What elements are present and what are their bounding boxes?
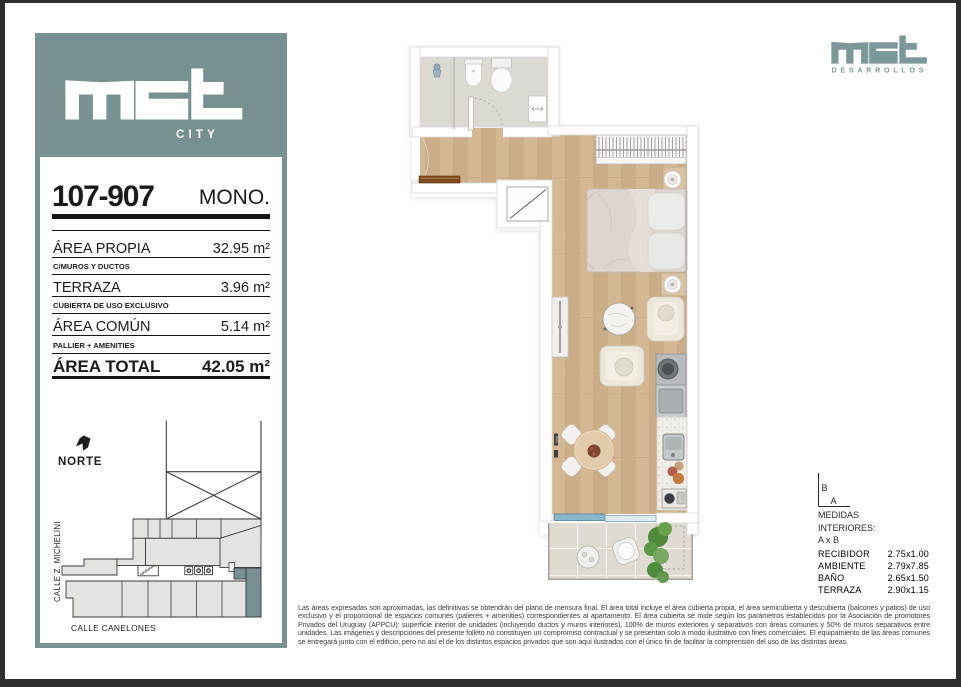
svg-text:CITY: CITY [176,129,219,141]
svg-text:DESARROLLOS: DESARROLLOS [832,66,928,75]
svg-text:A: A [831,496,837,506]
svg-text:NORTE: NORTE [58,456,102,468]
svg-text:CALLE Z. MICHELINI: CALLE Z. MICHELINI [53,521,62,602]
svg-text:B: B [822,483,828,493]
svg-text:CALLE CANELONES: CALLE CANELONES [71,623,156,633]
